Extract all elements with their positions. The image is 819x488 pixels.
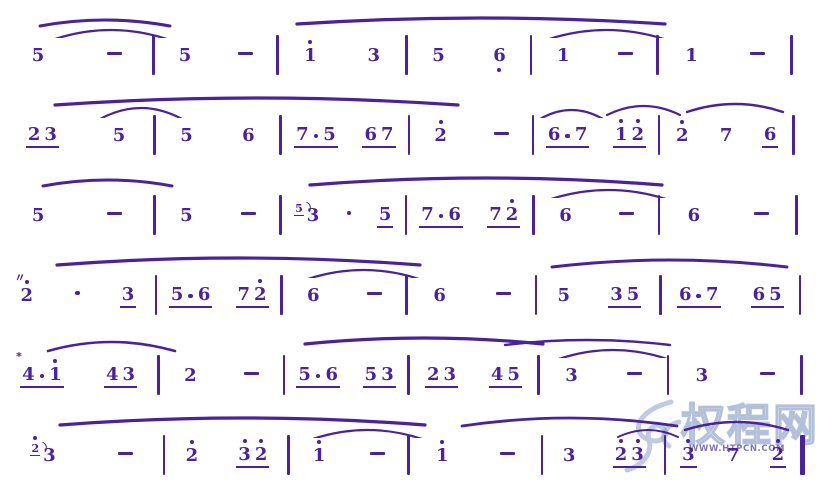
note-digit: 6: [197, 286, 212, 304]
measure-row: 55535767266: [0, 194, 819, 240]
measure: 5: [156, 194, 280, 240]
underline-group: 6: [762, 126, 779, 148]
barline: [287, 435, 290, 475]
system-row: 55135611: [0, 4, 819, 84]
slur-arc: [305, 338, 543, 344]
note-group: [499, 452, 516, 463]
barline: [659, 275, 662, 315]
note-group: 3: [561, 447, 578, 467]
note-digit: 6: [241, 127, 256, 145]
duration-dot: [347, 211, 352, 216]
underline-group: 67: [362, 126, 395, 148]
note-digit: 3: [122, 366, 137, 384]
dash-rest: [244, 372, 259, 376]
measure: 6: [283, 274, 406, 320]
note-group: 5: [556, 287, 573, 307]
barline: [153, 195, 156, 235]
measure-row: 23556756726712276: [0, 114, 819, 160]
dash-rest: [107, 52, 122, 56]
octave-dot-high: [680, 120, 684, 124]
note-digit: 3: [562, 447, 577, 465]
note-digit: 2: [253, 286, 268, 304]
dash-rest: [619, 212, 634, 216]
note-digit: 3: [42, 447, 57, 465]
slur-arc: [60, 418, 425, 425]
note-digit: 5: [626, 286, 641, 304]
note-digit: 4: [490, 366, 505, 384]
note-digit: 3: [681, 446, 696, 464]
measure-row: 55135611: [0, 34, 819, 80]
note-digit: 7: [726, 447, 741, 465]
note-group: 6: [305, 287, 322, 307]
system-row: 55535767266: [0, 164, 819, 244]
note-digit: 5: [768, 286, 783, 304]
note-digit: 5: [179, 207, 194, 225]
slur-arc: [462, 418, 677, 426]
dash-rest: [241, 212, 256, 216]
note-group: 2: [432, 127, 449, 147]
note-digit: 5: [31, 47, 46, 65]
slur-arc: [48, 342, 175, 351]
slur-arc: [552, 260, 787, 267]
note-digit: 3: [609, 286, 624, 304]
measure: 1: [290, 434, 407, 480]
phrase-slurs-layer: [0, 244, 819, 278]
note-group: 7: [725, 447, 742, 467]
barline: [407, 435, 410, 475]
note-group: 2〃: [19, 287, 36, 307]
duration-dot: [75, 291, 80, 296]
octave-dot-high: [190, 440, 194, 444]
octave-dot-high: [619, 119, 623, 123]
dash-rest: [627, 372, 642, 376]
note-group: [366, 292, 383, 303]
slur-arc: [40, 20, 170, 26]
underline-group: 76: [419, 206, 463, 228]
measure: 23: [0, 434, 163, 480]
duration-dot: [40, 374, 45, 379]
underline-group: 23: [26, 126, 59, 148]
duration-dot: [696, 294, 701, 299]
note-group: 1: [434, 447, 451, 467]
note-digit: 5: [431, 47, 446, 65]
measure: 6: [408, 274, 535, 320]
note-digit: 2: [630, 126, 645, 144]
barline: [530, 35, 533, 75]
note-group: 5: [178, 127, 195, 147]
note-digit: 1: [48, 366, 63, 384]
note-digit: 1: [614, 126, 629, 144]
octave-dot-high: [439, 120, 443, 124]
measure: 1: [659, 34, 791, 80]
measure: 535: [537, 274, 659, 320]
underline-group: 12: [613, 126, 646, 148]
measure: 2: [160, 354, 283, 400]
measure: 13: [279, 34, 406, 80]
grace-note-digit: 2: [30, 443, 40, 456]
slur-arc: [57, 258, 420, 265]
score-systems: 5513561123556756726712276555357672662〃35…: [0, 0, 819, 484]
note-group: 5: [30, 47, 47, 67]
note-group: 7: [718, 127, 735, 147]
dash-rest: [370, 452, 385, 456]
duration-dot: [188, 294, 193, 299]
dash-rest: [118, 452, 133, 456]
measure-row: 2323211323372: [0, 434, 819, 480]
barline: [153, 115, 156, 155]
note-digit: 3: [564, 367, 579, 385]
note-digit: 3: [121, 286, 136, 304]
measure: 5672: [157, 274, 280, 320]
underline-group: 65: [751, 286, 784, 308]
underline-group: 56: [169, 286, 213, 308]
note-digit: 5: [378, 206, 393, 224]
barline: [279, 195, 282, 235]
measure: 1: [532, 34, 656, 80]
note-digit: 7: [420, 206, 435, 224]
note-digit: 6: [432, 287, 447, 305]
octave-dot-high: [636, 439, 640, 443]
barline: [279, 115, 282, 155]
dash-rest: [750, 52, 765, 56]
note-group: [106, 212, 123, 223]
phrase-slurs-layer: [0, 324, 819, 358]
note-digit: 7: [719, 127, 734, 145]
note-digit: 2: [27, 126, 42, 144]
note-group: 5: [178, 207, 195, 227]
note-digit: 6: [687, 207, 702, 225]
measure: 5653: [285, 354, 407, 400]
note-group: 3: [365, 47, 382, 67]
barline: [541, 435, 544, 475]
octave-dot-high: [243, 439, 247, 443]
barline: [157, 355, 160, 395]
barline: [276, 35, 279, 75]
barline: [800, 435, 805, 475]
note-digit: 3: [306, 207, 321, 225]
octave-dot-high: [440, 440, 444, 444]
measure: 5: [0, 34, 152, 80]
note-digit: 7: [705, 286, 720, 304]
underline-group: 43: [104, 366, 137, 388]
measure: 6: [535, 194, 658, 240]
barline: [152, 35, 155, 75]
barline: [405, 275, 408, 315]
note-digit: 1: [556, 47, 571, 65]
note-digit: 7: [488, 206, 503, 224]
note-digit: 3: [695, 367, 710, 385]
phrase-slurs-layer: [0, 84, 819, 118]
note-group: [117, 452, 134, 463]
note-digit: 1: [303, 47, 318, 65]
measure: 4*143: [0, 354, 157, 400]
octave-dot-high: [259, 439, 263, 443]
measure: 2〃3: [0, 274, 155, 320]
note-digit: 1: [312, 447, 327, 465]
note-digit: 4: [105, 366, 120, 384]
sheet-music-page: 权程网 WWW.HTPCN.COM 5513561123556756726712…: [0, 0, 819, 488]
note-digit: 5: [178, 47, 193, 65]
measure: 276: [660, 114, 792, 160]
note-group: 2: [182, 367, 199, 387]
octave-dot-high: [258, 279, 262, 283]
underline-group: 3: [680, 446, 697, 468]
underline-group: 67: [546, 126, 590, 148]
measure: 5: [155, 34, 276, 80]
note-digit: 6: [752, 286, 767, 304]
underline-group: 3: [120, 286, 137, 308]
dash-rest: [496, 292, 511, 296]
measure: 5: [0, 194, 153, 240]
note-digit: 2: [771, 446, 786, 464]
barline: [163, 435, 166, 475]
barline: [408, 115, 411, 155]
note-group: 5: [430, 47, 447, 67]
note-digit: 2: [185, 447, 200, 465]
phrase-slurs-layer: [0, 4, 819, 38]
underline-group: 32: [236, 446, 269, 468]
slur-arc: [310, 178, 662, 185]
phrase-slurs-layer: [0, 404, 819, 438]
underline-group: 45: [489, 366, 522, 388]
note-digit: 5: [297, 366, 312, 384]
note-group: 1: [302, 47, 319, 67]
note-group: 6: [491, 47, 508, 67]
note-digit: 1: [684, 47, 699, 65]
note-digit: 3: [366, 47, 381, 65]
measure: 1: [410, 434, 541, 480]
underline-group: 72: [487, 206, 520, 228]
note-group: 53: [293, 207, 321, 227]
underline-group: 2: [770, 446, 787, 468]
note-digit: 5: [112, 127, 127, 145]
underline-group: 67: [677, 286, 721, 308]
note-group: 5: [30, 207, 47, 227]
note-digit: 3: [443, 366, 458, 384]
note-digit: 4*: [21, 366, 36, 384]
duration-dot: [314, 134, 319, 139]
note-group: 6: [240, 127, 257, 147]
note-group: 3: [563, 367, 580, 387]
octave-dot-high: [53, 359, 57, 363]
measure: 535: [282, 194, 405, 240]
system-row: 2323211323372: [0, 404, 819, 484]
barline: [664, 435, 667, 475]
note-group: [617, 52, 634, 63]
octave-dot-high: [317, 440, 321, 444]
barline: [800, 355, 803, 395]
measure-row: 4*14325653234533: [0, 354, 819, 400]
note-digit: 3: [380, 366, 395, 384]
dash-rest: [107, 212, 122, 216]
barline: [535, 275, 538, 315]
note-group: 1: [555, 47, 572, 67]
barline: [532, 115, 535, 155]
barline: [283, 355, 286, 395]
underline-group: 35: [608, 286, 641, 308]
measure: 3: [540, 354, 667, 400]
note-group: 23: [29, 447, 57, 467]
underline-group: 4*1: [20, 366, 64, 388]
note-digit: 7: [574, 126, 589, 144]
note-digit: 3: [630, 446, 645, 464]
ornament-mark: 〃: [15, 272, 26, 283]
note-digit: 5: [31, 207, 46, 225]
slur-arc: [297, 18, 665, 24]
note-digit: 7: [380, 126, 395, 144]
note-digit: 5: [557, 287, 572, 305]
note-group: 6: [431, 287, 448, 307]
duration-dot: [565, 134, 570, 139]
note-group: [106, 52, 123, 63]
slur-arc: [687, 104, 783, 112]
underline-group: 53: [363, 366, 396, 388]
note-digit: 6: [447, 206, 462, 224]
note-digit: 6: [306, 287, 321, 305]
note-digit: 5: [170, 286, 185, 304]
note-group: 3: [694, 367, 711, 387]
note-group: [344, 211, 355, 224]
note-group: [753, 212, 770, 223]
octave-dot-high: [510, 199, 514, 203]
grace-note-digit: 5: [294, 203, 304, 216]
barline: [795, 195, 798, 235]
barline: [656, 35, 659, 75]
dash-rest: [238, 52, 253, 56]
underline-group: 23: [613, 446, 646, 468]
underline-group: 23: [425, 366, 458, 388]
system-row: 4*14325653234533: [0, 324, 819, 404]
note-digit: 2: [675, 127, 690, 145]
note-group: 2: [674, 127, 691, 147]
barline: [667, 355, 670, 395]
measure: 7567: [282, 114, 408, 160]
note-digit: 6: [492, 47, 507, 65]
note-digit: 6: [678, 286, 693, 304]
measure: 6712: [534, 114, 658, 160]
duration-dot: [439, 214, 444, 219]
note-group: [493, 132, 510, 143]
phrase-slurs-layer: [0, 164, 819, 198]
octave-dot-high: [636, 119, 640, 123]
ornament-mark: *: [16, 351, 22, 362]
note-group: [759, 372, 776, 383]
dash-rest: [618, 52, 633, 56]
note-group: 1: [683, 47, 700, 67]
note-digit: 5: [506, 366, 521, 384]
dash-rest: [367, 292, 382, 296]
system-row: 2〃35672665356765: [0, 244, 819, 324]
note-digit: 2: [254, 446, 269, 464]
note-digit: 2: [433, 127, 448, 145]
measure-row: 2〃35672665356765: [0, 274, 819, 320]
barline: [792, 115, 795, 155]
barline: [405, 35, 408, 75]
note-digit: 6: [324, 366, 339, 384]
note-digit: 6: [558, 207, 573, 225]
octave-dot-high: [33, 436, 37, 440]
underline-group: 5: [377, 206, 394, 228]
measure: 6765: [662, 274, 799, 320]
dash-rest: [754, 212, 769, 216]
note-digit: 7: [237, 286, 252, 304]
note-group: 6: [686, 207, 703, 227]
octave-dot-high: [308, 40, 312, 44]
note-digit: 2: [426, 366, 441, 384]
note-group: [240, 212, 257, 223]
measure: 7672: [407, 194, 532, 240]
measure: 232: [165, 434, 287, 480]
underline-group: 75: [294, 126, 338, 148]
slur-arc: [43, 180, 172, 186]
note-group: [237, 52, 254, 63]
octave-dot-low: [497, 68, 501, 72]
note-digit: 6: [363, 126, 378, 144]
note-digit: 2: [614, 446, 629, 464]
barline: [155, 275, 158, 315]
note-digit: 5: [179, 127, 194, 145]
measure: 2: [410, 114, 531, 160]
note-digit: 5: [364, 366, 379, 384]
measure: 3: [669, 354, 800, 400]
measure: 56: [156, 114, 280, 160]
note-digit: 2: [505, 206, 520, 224]
note-group: [626, 372, 643, 383]
note-group: [618, 212, 635, 223]
barline: [280, 275, 283, 315]
underline-group: 72: [236, 286, 269, 308]
barline: [537, 355, 540, 395]
note-group: 1: [311, 447, 328, 467]
barline: [790, 35, 793, 75]
system-row: 23556756726712276: [0, 84, 819, 164]
note-digit: 2〃: [20, 287, 35, 305]
note-group: [72, 291, 83, 304]
note-group: [749, 52, 766, 63]
slur-arc: [55, 98, 458, 105]
barline: [658, 195, 661, 235]
note-digit: 3: [43, 126, 58, 144]
dash-rest: [494, 132, 509, 136]
barline: [658, 115, 661, 155]
note-digit: 6: [763, 126, 778, 144]
note-digit: 1: [435, 447, 450, 465]
slur-arc: [685, 422, 788, 430]
note-group: 5: [177, 47, 194, 67]
barline: [407, 355, 410, 395]
barline: [799, 275, 802, 315]
note-digit: 2: [183, 367, 198, 385]
octave-dot-high: [619, 439, 623, 443]
note-group: [243, 372, 260, 383]
note-group: 6: [557, 207, 574, 227]
dash-rest: [500, 452, 515, 456]
note-digit: 7: [295, 126, 310, 144]
note-digit: 3: [237, 446, 252, 464]
measure: 6: [660, 194, 795, 240]
measure: 323: [543, 434, 663, 480]
duration-dot: [316, 374, 321, 379]
measure: 235: [0, 114, 153, 160]
measure: 2345: [410, 354, 538, 400]
measure: 372: [666, 434, 800, 480]
octave-dot-high: [776, 439, 780, 443]
note-group: [495, 292, 512, 303]
note-digit: 5: [322, 126, 337, 144]
barline: [405, 195, 408, 235]
note-digit: 6: [547, 126, 562, 144]
dash-rest: [760, 372, 775, 376]
